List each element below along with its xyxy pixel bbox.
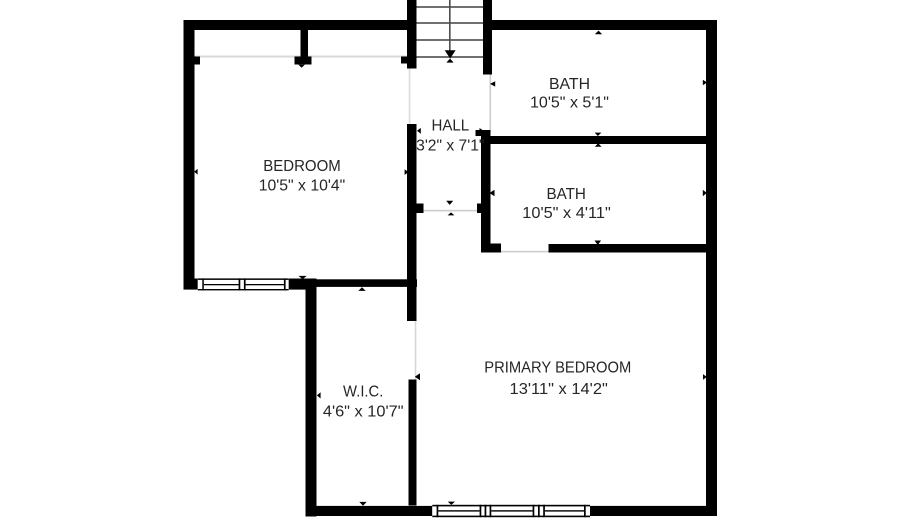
svg-text:BATH: BATH <box>549 76 590 93</box>
svg-text:10'5" x 4'11": 10'5" x 4'11" <box>522 205 611 222</box>
svg-text:HALL: HALL <box>431 118 469 135</box>
svg-text:10'5" x 5'1": 10'5" x 5'1" <box>530 95 609 112</box>
svg-text:10'5" x 10'4": 10'5" x 10'4" <box>259 178 346 195</box>
svg-text:13'11" x 14'2": 13'11" x 14'2" <box>510 381 608 398</box>
svg-text:4'6" x 10'7": 4'6" x 10'7" <box>323 403 404 420</box>
svg-text:BEDROOM: BEDROOM <box>263 158 341 175</box>
svg-text:BATH: BATH <box>546 186 586 203</box>
svg-text:PRIMARY BEDROOM: PRIMARY BEDROOM <box>484 360 631 377</box>
svg-text:W.I.C.: W.I.C. <box>343 383 383 400</box>
svg-text:3'2" x 7'1": 3'2" x 7'1" <box>416 137 484 154</box>
